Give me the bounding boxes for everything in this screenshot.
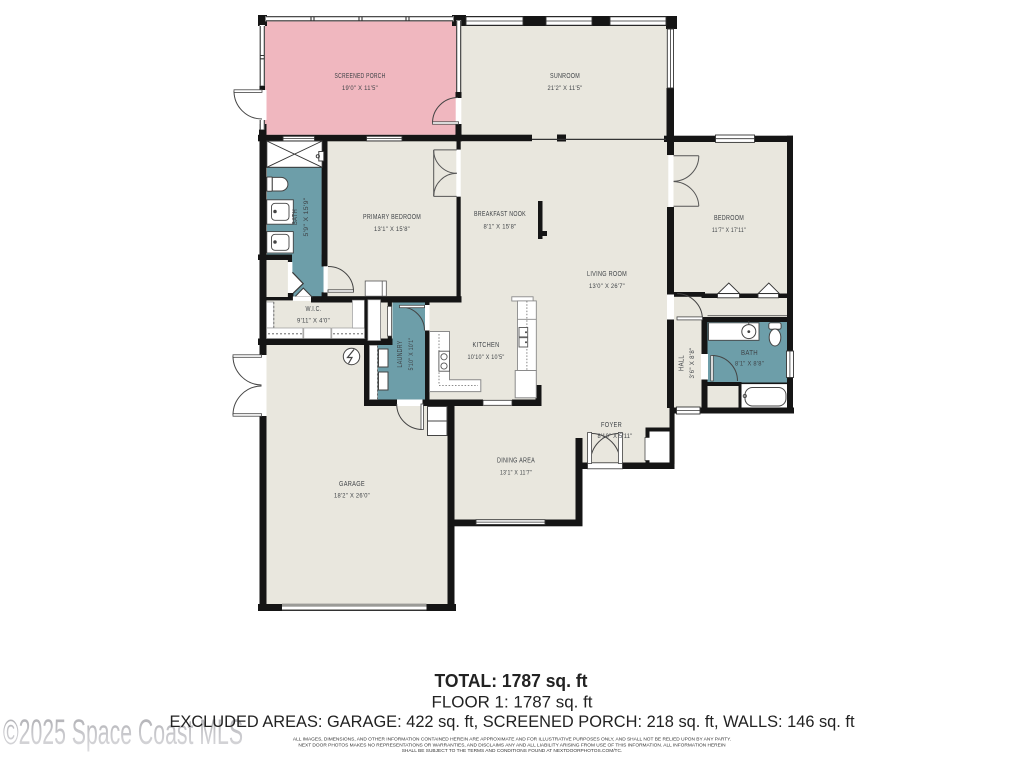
svg-text:W.I.C.: W.I.C. (306, 306, 322, 313)
svg-text:8'1" X 8'8": 8'1" X 8'8" (735, 361, 764, 368)
svg-text:11'7" X 17'11": 11'7" X 17'11" (712, 227, 746, 234)
svg-text:18'2" X 26'0": 18'2" X 26'0" (334, 493, 370, 500)
svg-text:LAUNDRY: LAUNDRY (397, 341, 404, 368)
svg-text:FOYER: FOYER (601, 422, 622, 429)
svg-text:EXCLUDED AREAS: GARAGE: 422 sq: EXCLUDED AREAS: GARAGE: 422 sq. ft, SCRE… (170, 712, 855, 731)
svg-text:SCREENED PORCH: SCREENED PORCH (335, 73, 386, 80)
svg-text:9'11" X 4'0": 9'11" X 4'0" (297, 318, 330, 325)
svg-text:13'0" X 26'7": 13'0" X 26'7" (589, 283, 625, 290)
svg-text:PRIMARY BEDROOM: PRIMARY BEDROOM (363, 214, 421, 221)
svg-text:GARAGE: GARAGE (339, 481, 365, 488)
svg-text:LIVING ROOM: LIVING ROOM (587, 271, 627, 278)
svg-text:ALL IMAGES, DIMENSIONS, AND OT: ALL IMAGES, DIMENSIONS, AND OTHER INFORM… (293, 737, 731, 743)
svg-text:3'6" X 8'8": 3'6" X 8'8" (689, 347, 696, 378)
svg-text:SHALL BE SUBJECT TO THE TERMS: SHALL BE SUBJECT TO THE TERMS AND CONDIT… (402, 748, 623, 754)
svg-text:BEDROOM: BEDROOM (714, 215, 744, 222)
svg-text:FLOOR 1: 1787 sq. ft: FLOOR 1: 1787 sq. ft (432, 693, 593, 712)
svg-text:NEXT DOOR PHOTOS MAKES NO REPR: NEXT DOOR PHOTOS MAKES NO REPRESENTATION… (298, 742, 726, 748)
svg-text:HALL: HALL (679, 355, 686, 371)
svg-text:5'9" X 15'9": 5'9" X 15'9" (303, 197, 310, 236)
svg-text:TOTAL: 1787 sq. ft: TOTAL: 1787 sq. ft (435, 671, 588, 691)
svg-text:13'1" X 15'8": 13'1" X 15'8" (374, 226, 410, 233)
svg-text:KITCHEN: KITCHEN (473, 342, 500, 349)
svg-text:8'1" X 15'8": 8'1" X 15'8" (484, 224, 517, 231)
svg-text:10'10" X 10'5": 10'10" X 10'5" (468, 354, 505, 361)
svg-text:BATH: BATH (292, 209, 299, 225)
svg-text:BATH: BATH (741, 350, 758, 357)
svg-text:BREAKFAST NOOK: BREAKFAST NOOK (474, 211, 526, 218)
svg-text:DINING AREA: DINING AREA (497, 458, 535, 465)
svg-text:5'10" X 10'1": 5'10" X 10'1" (408, 337, 415, 370)
svg-text:13'1" X 11'7": 13'1" X 11'7" (500, 470, 532, 477)
svg-text:21'2" X 11'5": 21'2" X 11'5" (548, 85, 583, 92)
svg-text:19'0" X 11'5": 19'0" X 11'5" (342, 85, 378, 92)
svg-text:8'10" X 5'11": 8'10" X 5'11" (598, 433, 633, 440)
svg-text:SUNROOM: SUNROOM (550, 73, 580, 80)
